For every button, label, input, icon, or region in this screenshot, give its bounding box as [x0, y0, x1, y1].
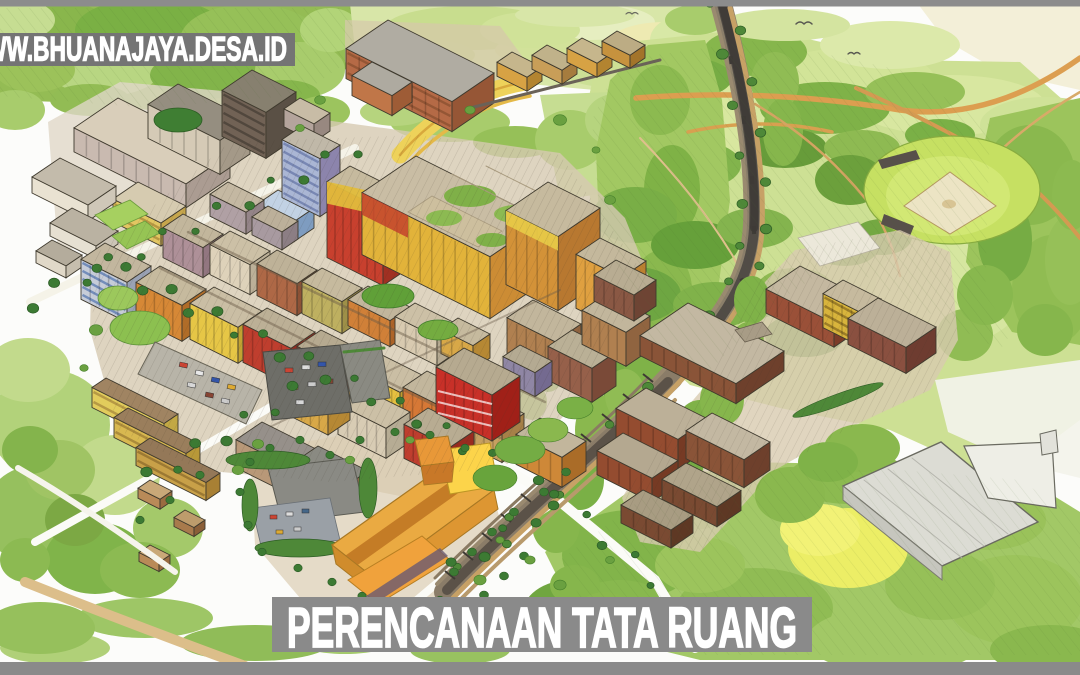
- svg-text:WW.BHUANAJAYA.DESA.ID: WW.BHUANAJAYA.DESA.ID: [0, 31, 287, 69]
- svg-text:PERENCANAAN TATA RUANG: PERENCANAAN TATA RUANG: [287, 596, 797, 660]
